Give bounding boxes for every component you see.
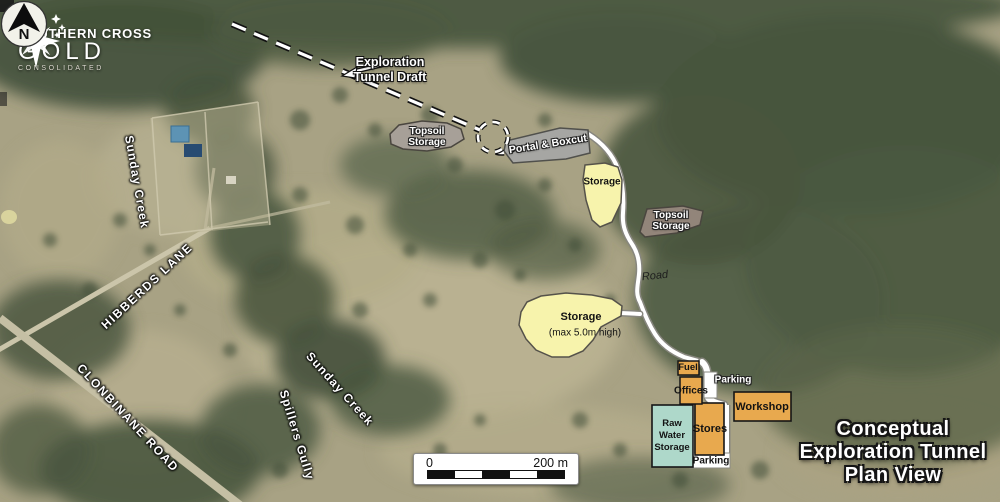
workshop-label: Workshop [735,401,789,413]
tunnel-draft-label: Exploration Tunnel Draft [354,55,427,85]
stores-label: Stores [693,423,727,435]
storage-main-label: Storage [561,311,602,323]
scale-bar-segments [427,470,565,479]
parking-lower-label: Parking [693,456,730,467]
scale-bar: 0 200 m [413,453,579,485]
storage-upper-area [583,163,622,227]
map-canvas: SOUTHERN CROSS GOLD CONSOLIDATED N Explo… [0,0,1000,502]
raw-water-storage-label: Raw Water Storage [650,418,694,454]
map-title-line-1: Conceptual [793,418,993,441]
tunnel-alignment [232,24,513,153]
scale-zero-label: 0 [426,456,433,470]
topsoil-storage-lower-label: Topsoil Storage [646,210,696,232]
storage-main-sub-label: (max 5.0m high) [549,328,621,339]
scale-max-label: 200 m [533,456,568,470]
offices-label: Offices [674,386,708,397]
storage-upper-label: Storage [583,177,620,188]
fuel-label: Fuel [678,363,698,373]
map-title: Conceptual Exploration Tunnel Plan View [793,418,993,487]
topsoil-storage-upper-label: Topsoil Storage [400,126,454,148]
map-title-line-3: Plan View [793,464,993,487]
map-title-line-2: Exploration Tunnel [793,441,993,464]
storage-main-area [519,293,622,357]
north-arrow-icon: N [0,0,48,48]
north-label: N [19,26,30,43]
parking-upper-label: Parking [715,375,752,386]
